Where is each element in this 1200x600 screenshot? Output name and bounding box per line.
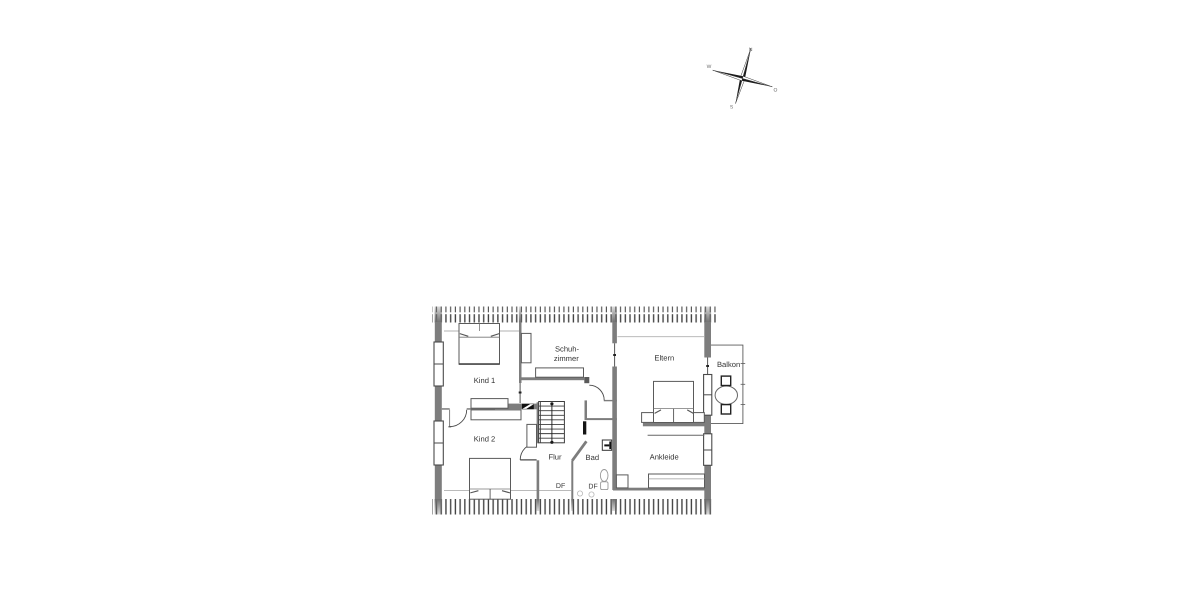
svg-text:DF: DF	[588, 484, 597, 491]
svg-text:S: S	[730, 105, 734, 111]
svg-text:zimmer: zimmer	[554, 354, 579, 363]
svg-text:W: W	[707, 64, 712, 70]
svg-text:N: N	[749, 47, 753, 53]
svg-text:O: O	[774, 88, 778, 94]
svg-text:Eltern: Eltern	[654, 353, 674, 362]
svg-text:Kind 2: Kind 2	[474, 435, 496, 444]
svg-text:Balkon: Balkon	[717, 360, 740, 369]
svg-text:Schuh-: Schuh-	[555, 345, 580, 354]
svg-text:DF: DF	[556, 483, 565, 490]
svg-text:Flur: Flur	[548, 453, 562, 462]
svg-text:Bad: Bad	[586, 453, 600, 462]
svg-text:Ankleide: Ankleide	[650, 453, 679, 462]
svg-text:Kind 1: Kind 1	[474, 376, 496, 385]
